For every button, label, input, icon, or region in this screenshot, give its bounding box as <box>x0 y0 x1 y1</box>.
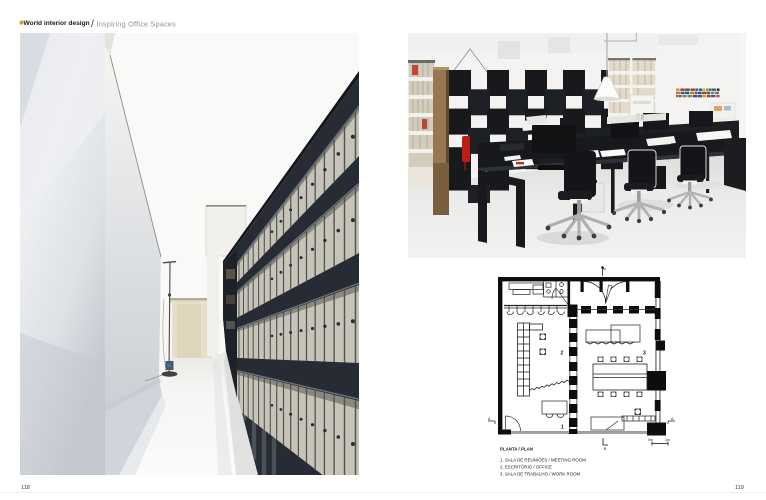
svg-text:1m: 1m <box>665 438 670 442</box>
svg-text:PLANTA / PLAN: PLANTA / PLAN <box>500 447 533 452</box>
svg-text:A: A <box>671 417 674 421</box>
svg-text:World interior design: World interior design <box>24 20 90 27</box>
svg-text:2: 2 <box>561 351 564 357</box>
svg-text:B: B <box>604 447 607 451</box>
svg-text:3: 3 <box>643 351 646 357</box>
svg-text:/: / <box>91 18 94 30</box>
svg-text:1: 1 <box>561 425 564 431</box>
svg-text:1. SALA DE REUNIÕES / MEETING: 1. SALA DE REUNIÕES / MEETING ROOM <box>500 458 586 463</box>
svg-text:Inspiring Office Spaces: Inspiring Office Spaces <box>97 19 177 28</box>
svg-text:3. SALA DE TRABALHO / WORK ROO: 3. SALA DE TRABALHO / WORK ROOM <box>500 472 581 477</box>
svg-text:0m: 0m <box>648 438 653 442</box>
svg-text:2. ESCRITÓRIO / OFFICE: 2. ESCRITÓRIO / OFFICE <box>500 465 552 470</box>
svg-text:A: A <box>488 417 491 421</box>
